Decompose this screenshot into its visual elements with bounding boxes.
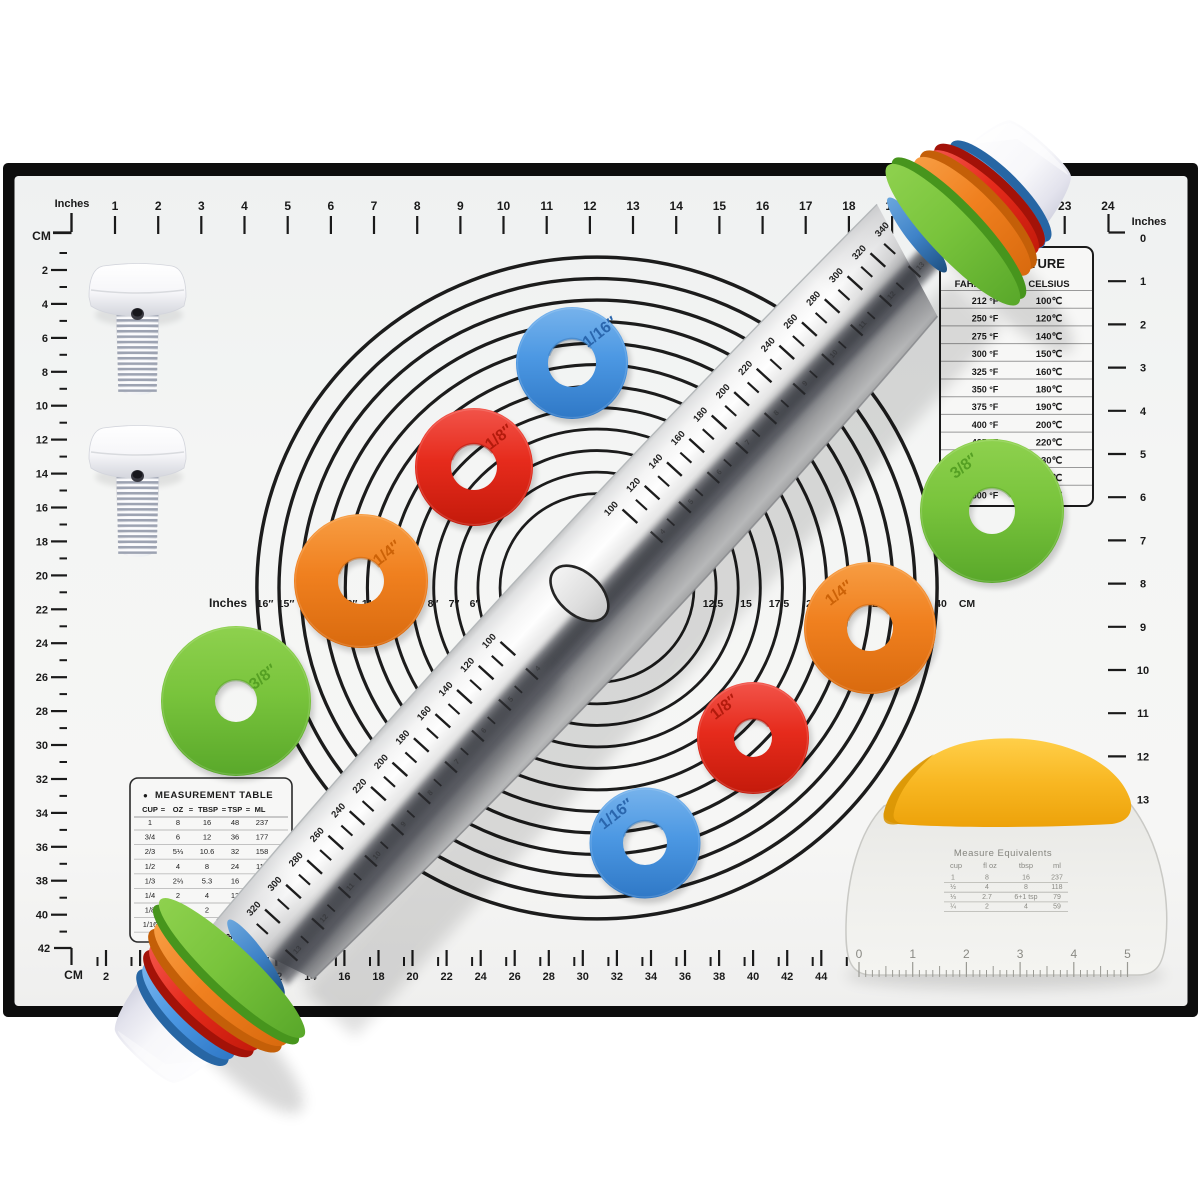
svg-text:34: 34 bbox=[36, 808, 49, 820]
svg-text:177: 177 bbox=[256, 833, 269, 842]
svg-text:4: 4 bbox=[241, 199, 248, 213]
svg-text:9: 9 bbox=[457, 199, 464, 213]
svg-text:32: 32 bbox=[231, 847, 239, 856]
svg-text:ml: ml bbox=[1053, 861, 1061, 870]
svg-text:Inches: Inches bbox=[55, 198, 90, 210]
svg-text:4: 4 bbox=[1024, 904, 1028, 911]
svg-text:38: 38 bbox=[713, 971, 725, 983]
svg-text:Measure Equivalents: Measure Equivalents bbox=[954, 848, 1052, 859]
svg-text:1/3: 1/3 bbox=[145, 876, 155, 885]
svg-text:cup: cup bbox=[950, 861, 962, 870]
svg-text:10.6: 10.6 bbox=[200, 847, 215, 856]
svg-text:18: 18 bbox=[36, 536, 48, 548]
svg-text:2⅔: 2⅔ bbox=[173, 876, 184, 885]
svg-text:14: 14 bbox=[670, 199, 684, 213]
svg-text:36: 36 bbox=[36, 842, 48, 854]
svg-text:6″: 6″ bbox=[470, 598, 481, 610]
svg-text:5: 5 bbox=[1124, 947, 1131, 961]
svg-text:18: 18 bbox=[842, 199, 856, 213]
svg-text:36: 36 bbox=[679, 971, 691, 983]
svg-text:2: 2 bbox=[985, 904, 989, 911]
svg-text:3: 3 bbox=[1017, 947, 1024, 961]
svg-text:fl oz: fl oz bbox=[983, 861, 997, 870]
svg-text:8: 8 bbox=[176, 818, 180, 827]
svg-text:22: 22 bbox=[36, 604, 48, 616]
svg-text:36: 36 bbox=[231, 833, 239, 842]
svg-text:2: 2 bbox=[1140, 319, 1146, 331]
svg-text:16: 16 bbox=[231, 876, 239, 885]
svg-text:1/2: 1/2 bbox=[145, 862, 155, 871]
svg-text:22: 22 bbox=[440, 971, 452, 983]
svg-text:28: 28 bbox=[36, 706, 48, 718]
svg-text:2: 2 bbox=[963, 947, 970, 961]
svg-text:⅓: ⅓ bbox=[950, 894, 956, 901]
svg-text:CM: CM bbox=[959, 598, 976, 610]
svg-text:30: 30 bbox=[36, 740, 48, 752]
svg-text:¼: ¼ bbox=[950, 904, 956, 911]
svg-text:4: 4 bbox=[42, 299, 49, 311]
svg-text:9: 9 bbox=[1140, 622, 1146, 634]
svg-text:=: = bbox=[161, 805, 166, 814]
svg-text:325 °F: 325 °F bbox=[972, 367, 999, 377]
svg-text:4: 4 bbox=[205, 891, 209, 900]
svg-text:5.3: 5.3 bbox=[202, 876, 212, 885]
svg-text:10: 10 bbox=[497, 199, 511, 213]
svg-text:1: 1 bbox=[951, 875, 955, 882]
svg-text:190℃: 190℃ bbox=[1036, 402, 1063, 413]
svg-text:0: 0 bbox=[856, 947, 863, 961]
svg-text:7: 7 bbox=[1140, 535, 1146, 547]
svg-text:28: 28 bbox=[543, 971, 555, 983]
svg-text:16: 16 bbox=[1022, 875, 1030, 882]
svg-text:400 °F: 400 °F bbox=[972, 420, 999, 430]
svg-text:3: 3 bbox=[1140, 363, 1146, 375]
svg-text:8: 8 bbox=[42, 367, 48, 379]
svg-text:1: 1 bbox=[112, 199, 119, 213]
svg-text:59: 59 bbox=[1053, 904, 1061, 911]
svg-text:14: 14 bbox=[36, 469, 49, 481]
svg-text:ML: ML bbox=[255, 805, 266, 814]
svg-text:=: = bbox=[189, 805, 194, 814]
svg-text:16: 16 bbox=[203, 818, 211, 827]
svg-text:10: 10 bbox=[36, 401, 48, 413]
svg-text:2: 2 bbox=[42, 265, 48, 277]
svg-text:1: 1 bbox=[909, 947, 916, 961]
svg-text:16″: 16″ bbox=[257, 598, 274, 610]
svg-text:6+1 tsp: 6+1 tsp bbox=[1014, 894, 1037, 901]
svg-text:4: 4 bbox=[1070, 947, 1077, 961]
svg-text:32: 32 bbox=[36, 774, 48, 786]
svg-text:tbsp: tbsp bbox=[1019, 861, 1033, 870]
svg-text:40: 40 bbox=[36, 910, 48, 922]
svg-text:6: 6 bbox=[176, 833, 180, 842]
svg-text:42: 42 bbox=[781, 971, 793, 983]
svg-text:11: 11 bbox=[1137, 708, 1149, 720]
svg-text:CM: CM bbox=[64, 968, 83, 982]
svg-text:350 °F: 350 °F bbox=[972, 385, 999, 395]
svg-text:TBSP: TBSP bbox=[198, 805, 218, 814]
svg-text:6: 6 bbox=[328, 199, 335, 213]
svg-text:5: 5 bbox=[284, 199, 291, 213]
svg-text:8: 8 bbox=[1024, 884, 1028, 891]
svg-text:Inches: Inches bbox=[209, 596, 247, 610]
svg-text:10: 10 bbox=[1137, 665, 1149, 677]
svg-text:2: 2 bbox=[155, 199, 162, 213]
svg-text:32: 32 bbox=[611, 971, 623, 983]
svg-text:4: 4 bbox=[1140, 406, 1147, 418]
svg-text:8: 8 bbox=[414, 199, 421, 213]
svg-text:12: 12 bbox=[203, 833, 211, 842]
svg-text:13: 13 bbox=[626, 199, 640, 213]
svg-text:42: 42 bbox=[38, 943, 50, 955]
svg-text:15″: 15″ bbox=[278, 598, 295, 610]
svg-text:2: 2 bbox=[176, 891, 180, 900]
svg-text:12: 12 bbox=[36, 435, 48, 447]
svg-text:26: 26 bbox=[509, 971, 521, 983]
svg-text:220℃: 220℃ bbox=[1036, 438, 1063, 449]
svg-text:MEASUREMENT TABLE: MEASUREMENT TABLE bbox=[155, 790, 273, 801]
svg-text:16: 16 bbox=[756, 199, 770, 213]
svg-text:TSP: TSP bbox=[228, 805, 243, 814]
svg-text:CUP: CUP bbox=[142, 805, 158, 814]
svg-text:8: 8 bbox=[1140, 579, 1146, 591]
svg-text:17.5: 17.5 bbox=[769, 598, 790, 610]
svg-text:40: 40 bbox=[935, 598, 947, 610]
svg-text:30: 30 bbox=[577, 971, 589, 983]
svg-text:34: 34 bbox=[645, 971, 658, 983]
svg-text:44: 44 bbox=[815, 971, 828, 983]
svg-text:4: 4 bbox=[176, 862, 180, 871]
svg-text:1: 1 bbox=[148, 818, 152, 827]
svg-text:1/4: 1/4 bbox=[145, 891, 155, 900]
svg-text:OZ: OZ bbox=[173, 805, 184, 814]
svg-text:16: 16 bbox=[36, 503, 48, 515]
svg-text:375 °F: 375 °F bbox=[972, 402, 999, 412]
svg-text:=: = bbox=[222, 805, 227, 814]
svg-text:½: ½ bbox=[950, 883, 956, 891]
svg-text:158: 158 bbox=[256, 847, 269, 856]
svg-text:17: 17 bbox=[799, 199, 813, 213]
svg-text:7″: 7″ bbox=[449, 598, 460, 610]
svg-text:6: 6 bbox=[1140, 492, 1146, 504]
svg-text:4: 4 bbox=[985, 884, 989, 891]
svg-text:38: 38 bbox=[36, 876, 48, 888]
svg-text:237: 237 bbox=[256, 818, 269, 827]
svg-text:2.7: 2.7 bbox=[982, 894, 992, 901]
svg-text:13: 13 bbox=[1137, 795, 1149, 807]
svg-text:160℃: 160℃ bbox=[1036, 367, 1063, 378]
svg-text:79: 79 bbox=[1053, 894, 1061, 901]
svg-text:5⅓: 5⅓ bbox=[173, 847, 184, 856]
svg-text:●: ● bbox=[143, 791, 148, 800]
svg-text:40: 40 bbox=[747, 971, 759, 983]
svg-text:118: 118 bbox=[1051, 884, 1062, 891]
svg-text:8: 8 bbox=[205, 862, 209, 871]
svg-text:12: 12 bbox=[583, 199, 597, 213]
svg-text:2: 2 bbox=[103, 971, 109, 983]
svg-text:0: 0 bbox=[1140, 233, 1146, 245]
svg-text:8: 8 bbox=[985, 875, 989, 882]
svg-text:12: 12 bbox=[1137, 751, 1149, 763]
svg-text:26: 26 bbox=[36, 672, 48, 684]
svg-text:2/3: 2/3 bbox=[145, 847, 155, 856]
svg-text:20: 20 bbox=[36, 570, 48, 582]
svg-text:3/4: 3/4 bbox=[145, 833, 155, 842]
svg-text:24: 24 bbox=[1101, 199, 1115, 213]
svg-text:Inches: Inches bbox=[1132, 216, 1167, 228]
svg-text:48: 48 bbox=[231, 818, 239, 827]
svg-text:200℃: 200℃ bbox=[1036, 420, 1063, 431]
svg-text:1: 1 bbox=[1140, 276, 1146, 288]
svg-text:24: 24 bbox=[231, 862, 239, 871]
svg-text:7: 7 bbox=[371, 199, 378, 213]
svg-text:15: 15 bbox=[713, 199, 727, 213]
svg-text:24: 24 bbox=[36, 638, 49, 650]
svg-text:3: 3 bbox=[198, 199, 205, 213]
svg-text:=: = bbox=[246, 805, 251, 814]
svg-text:11: 11 bbox=[540, 199, 553, 213]
svg-text:24: 24 bbox=[475, 971, 488, 983]
svg-text:237: 237 bbox=[1051, 875, 1063, 882]
svg-text:6: 6 bbox=[42, 333, 48, 345]
svg-text:180℃: 180℃ bbox=[1036, 385, 1063, 396]
svg-text:CM: CM bbox=[32, 229, 51, 243]
svg-text:5: 5 bbox=[1140, 449, 1146, 461]
svg-text:2: 2 bbox=[205, 906, 209, 915]
